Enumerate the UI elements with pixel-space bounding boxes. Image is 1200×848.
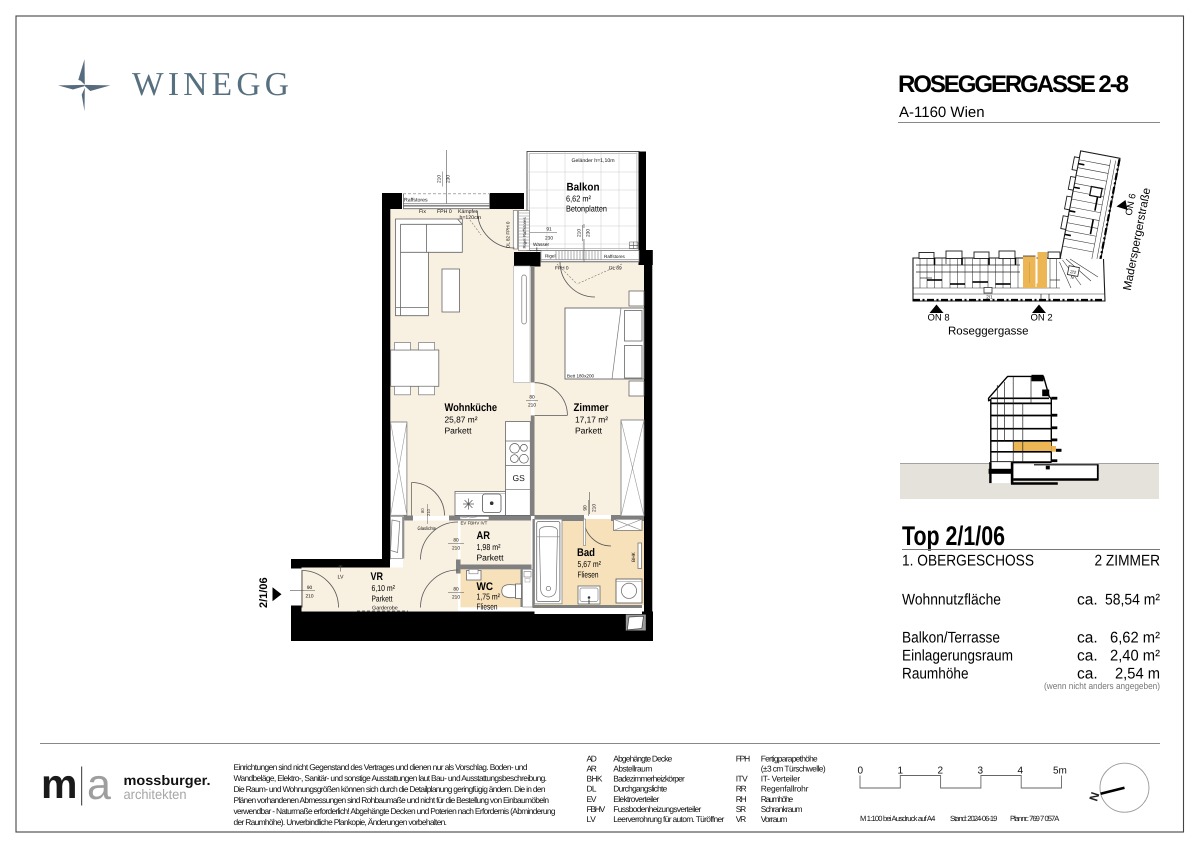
svg-text:Wandbeläge, Elektro-, Sanitär-: Wandbeläge, Elektro-, Sanitär- und sonst… <box>234 773 548 783</box>
svg-text:DL 82 FPH 0: DL 82 FPH 0 <box>506 221 511 248</box>
svg-text:Abstellraum: Abstellraum <box>613 764 652 774</box>
svg-text:(±3 cm Türschwelle): (±3 cm Türschwelle) <box>761 764 826 774</box>
svg-text:80: 80 <box>420 508 425 513</box>
svg-text:Einrichtungen sind nicht Gegen: Einrichtungen sind nicht Gegenstand des … <box>234 762 528 772</box>
svg-text:2: 2 <box>938 766 944 777</box>
svg-text:WINEGG: WINEGG <box>132 66 296 103</box>
svg-text:Rigel Raffstores: Rigel Raffstores <box>522 217 527 249</box>
svg-text:Stand: 2024-06-19: Stand: 2024-06-19 <box>950 814 997 823</box>
svg-text:80: 80 <box>453 587 459 593</box>
svg-text:91: 91 <box>546 227 552 233</box>
svg-text:der Raumhöhe). Unverbindliche: der Raumhöhe). Unverbindliche Plankopie,… <box>234 817 448 827</box>
svg-text:Geländer h=1,10m: Geländer h=1,10m <box>571 158 614 164</box>
svg-text:LV: LV <box>338 575 344 581</box>
svg-text:25,87 m²: 25,87 m² <box>445 415 478 425</box>
svg-text:ON 2: ON 2 <box>1031 313 1053 324</box>
svg-text:(wenn nicht anders angegeben): (wenn nicht anders angegeben) <box>1044 681 1160 691</box>
svg-text:Plannr.: 769 7 057A: Plannr.: 769 7 057A <box>1010 814 1060 823</box>
svg-text:80: 80 <box>453 538 459 544</box>
svg-text:Fix: Fix <box>419 209 426 215</box>
svg-text:VR: VR <box>371 571 384 583</box>
svg-text:2/1: 2/1 <box>986 295 993 300</box>
svg-text:Die Raum- und Wohnungsgrößen k: Die Raum- und Wohnungsgrößen können sich… <box>234 784 546 794</box>
svg-text:2/1/06: 2/1/06 <box>258 577 270 608</box>
svg-text:210: 210 <box>452 595 460 601</box>
svg-text:ca.: ca. <box>1077 666 1098 683</box>
svg-text:210: 210 <box>426 508 431 516</box>
svg-text:a: a <box>87 761 111 809</box>
svg-text:GS: GS <box>513 473 526 483</box>
svg-text:Roseggergasse: Roseggergasse <box>948 326 1029 338</box>
svg-text:80: 80 <box>529 395 535 401</box>
svg-text:ITV: ITV <box>736 774 748 784</box>
svg-text:Bett 180x200: Bett 180x200 <box>567 374 595 379</box>
svg-text:ON 8: ON 8 <box>928 313 950 324</box>
svg-text:Parkett: Parkett <box>445 426 473 436</box>
svg-text:Parkett: Parkett <box>477 553 505 563</box>
svg-text:Leerverrohrung für autom. Türö: Leerverrohrung für autom. Türöffner <box>613 814 724 824</box>
svg-text:Fussbodenheizungsverteiler: Fussbodenheizungsverteiler <box>613 804 701 814</box>
svg-text:VR: VR <box>736 814 747 824</box>
svg-text:ca.: ca. <box>1077 592 1098 609</box>
svg-text:Vorraum: Vorraum <box>761 814 788 824</box>
svg-text:230: 230 <box>545 236 553 242</box>
svg-text:230: 230 <box>446 175 452 183</box>
svg-text:Wohnnutzfläche: Wohnnutzfläche <box>902 592 1001 609</box>
svg-text:6,62 m²: 6,62 m² <box>566 194 591 204</box>
svg-text:210: 210 <box>305 594 313 600</box>
svg-text:210: 210 <box>577 229 583 237</box>
svg-text:2 ZIMMER: 2 ZIMMER <box>1095 553 1161 570</box>
svg-text:Rigel: Rigel <box>545 254 555 259</box>
svg-text:90: 90 <box>583 505 589 511</box>
svg-text:90: 90 <box>307 585 313 591</box>
svg-text:RR: RR <box>736 784 747 794</box>
svg-text:Raffstores: Raffstores <box>404 198 428 204</box>
svg-text:0: 0 <box>858 766 864 777</box>
svg-text:Balkon/Terrasse: Balkon/Terrasse <box>902 630 1000 647</box>
svg-text:Regenfallrohr: Regenfallrohr <box>761 784 809 794</box>
svg-text:Fertigparapethöhe: Fertigparapethöhe <box>761 754 818 764</box>
svg-text:Abgehängte Decke: Abgehängte Decke <box>613 754 672 764</box>
svg-text:6,62 m²: 6,62 m² <box>1110 630 1160 647</box>
svg-text:Raumhöhe: Raumhöhe <box>902 666 969 683</box>
svg-text:Zimmer: Zimmer <box>574 402 610 414</box>
svg-text:2,40 m²: 2,40 m² <box>1110 648 1160 665</box>
svg-text:1. OBERGESCHOSS: 1. OBERGESCHOSS <box>902 553 1034 570</box>
svg-text:EV FBHV IVT: EV FBHV IVT <box>461 521 488 526</box>
svg-text:Wohnküche: Wohnküche <box>445 402 498 414</box>
svg-text:Balkon: Balkon <box>567 182 600 194</box>
svg-text:210: 210 <box>528 403 536 409</box>
svg-text:AR: AR <box>587 764 597 774</box>
svg-text:verwendbar - Naturmaße erforde: verwendbar - Naturmaße erforderlich! Abg… <box>234 806 556 816</box>
svg-text:5,67 m²: 5,67 m² <box>578 559 602 569</box>
svg-text:FPH: FPH <box>736 754 751 764</box>
svg-text:ca.: ca. <box>1077 630 1098 647</box>
svg-text:2,54 m: 2,54 m <box>1115 666 1160 683</box>
svg-text:AR: AR <box>477 530 491 542</box>
svg-text:architekten: architekten <box>124 787 187 802</box>
svg-text:DL 89: DL 89 <box>609 266 622 272</box>
svg-text:1,98 m²: 1,98 m² <box>477 542 501 552</box>
svg-text:Raumhöhe: Raumhöhe <box>761 794 794 804</box>
svg-text:1,75 m²: 1,75 m² <box>477 592 501 602</box>
svg-text:FPH 0: FPH 0 <box>555 266 569 272</box>
svg-text:Schrankraum: Schrankraum <box>761 804 803 814</box>
svg-text:Durchgangslichte: Durchgangslichte <box>613 784 667 794</box>
svg-text:Glaslichte: Glaslichte <box>418 526 437 532</box>
svg-text:A-1160 Wien: A-1160 Wien <box>899 104 985 121</box>
svg-text:5m: 5m <box>1053 766 1067 777</box>
svg-text:RH: RH <box>736 794 747 804</box>
svg-text:Plänen vorhandenen Abmessungen: Plänen vorhandenen Abmessungen sind Rohb… <box>234 795 550 805</box>
svg-text:Raffstores: Raffstores <box>604 254 626 259</box>
svg-text:Einlagerungsraum: Einlagerungsraum <box>902 648 1013 665</box>
svg-text:Elektroverteiler: Elektroverteiler <box>613 794 659 804</box>
svg-text:LV: LV <box>587 814 597 824</box>
svg-text:BHK: BHK <box>587 774 603 784</box>
svg-text:Bad: Bad <box>577 547 595 559</box>
svg-text:17,17 m²: 17,17 m² <box>575 415 608 425</box>
svg-text:SR: SR <box>736 804 747 814</box>
svg-text:58,54 m²: 58,54 m² <box>1105 592 1160 609</box>
svg-text:DL: DL <box>587 784 597 794</box>
svg-text:210: 210 <box>437 175 443 183</box>
svg-text:Top 2/1/06: Top 2/1/06 <box>902 521 1005 551</box>
svg-text:4: 4 <box>1018 766 1024 777</box>
svg-text:210: 210 <box>592 504 598 512</box>
svg-text:Parkett: Parkett <box>575 426 603 436</box>
svg-text:ROSEGGERGASSE 2-8: ROSEGGERGASSE 2-8 <box>898 71 1129 98</box>
svg-text:Parkett: Parkett <box>372 594 393 604</box>
svg-text:Badezimmerheizkörper: Badezimmerheizkörper <box>613 774 685 784</box>
svg-text:EV: EV <box>587 794 597 804</box>
svg-text:3: 3 <box>978 766 984 777</box>
svg-text:ca.: ca. <box>1077 648 1098 665</box>
svg-text:230: 230 <box>586 229 592 237</box>
svg-text:Garderobe: Garderobe <box>372 606 398 612</box>
svg-text:FBHV: FBHV <box>587 804 606 814</box>
svg-text:Betonplatten: Betonplatten <box>566 204 607 214</box>
svg-text:FPH 0: FPH 0 <box>437 209 452 215</box>
svg-text:AD: AD <box>587 754 597 764</box>
svg-text:BHK: BHK <box>631 551 637 562</box>
svg-text:210: 210 <box>452 546 460 552</box>
svg-text:Wasser: Wasser <box>533 242 549 248</box>
svg-text:6,10 m²: 6,10 m² <box>372 583 396 593</box>
svg-text:m: m <box>41 761 77 807</box>
svg-text:Fliesen: Fliesen <box>578 570 599 580</box>
svg-text:mossburger.: mossburger. <box>124 773 211 788</box>
svg-text:1: 1 <box>898 766 904 777</box>
svg-text:Fliesen: Fliesen <box>477 602 498 612</box>
svg-text:IT- Verteiler: IT- Verteiler <box>761 774 801 784</box>
svg-text:M 1:100 bei Ausdruck auf A4: M 1:100 bei Ausdruck auf A4 <box>860 814 935 823</box>
